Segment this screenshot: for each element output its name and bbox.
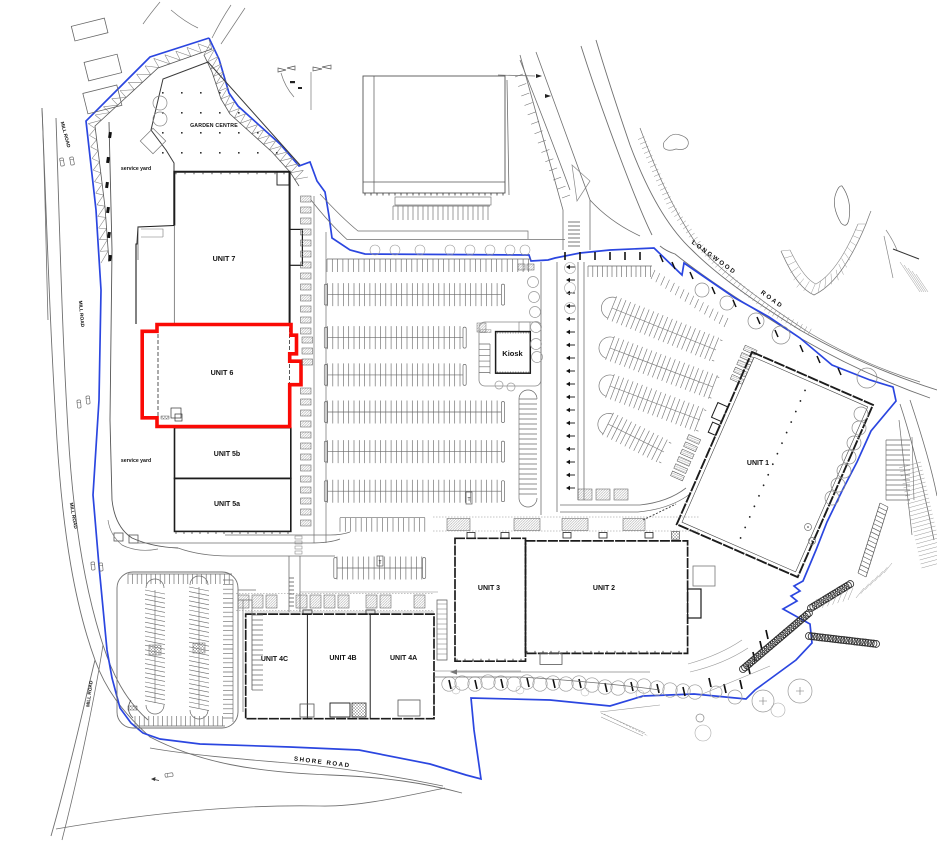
svg-text:UNIT 4B: UNIT 4B bbox=[329, 655, 356, 662]
svg-text:GARDEN CENTRE: GARDEN CENTRE bbox=[190, 123, 238, 129]
svg-text:UNIT 7: UNIT 7 bbox=[213, 254, 236, 263]
svg-text:UNIT 1: UNIT 1 bbox=[747, 460, 769, 467]
svg-text:T: T bbox=[378, 560, 381, 566]
svg-text:UNIT 6: UNIT 6 bbox=[211, 368, 234, 377]
svg-text:UNIT 4A: UNIT 4A bbox=[390, 655, 417, 662]
svg-text:service yard: service yard bbox=[121, 166, 151, 172]
svg-text:T: T bbox=[467, 497, 470, 503]
svg-text:UNIT 4C: UNIT 4C bbox=[261, 656, 288, 663]
svg-text:UNIT 3: UNIT 3 bbox=[478, 585, 500, 592]
svg-text:UNIT 2: UNIT 2 bbox=[593, 585, 615, 592]
svg-text:UNIT 5a: UNIT 5a bbox=[214, 501, 240, 508]
svg-text:service yard: service yard bbox=[121, 458, 151, 464]
svg-text:UNIT 5b: UNIT 5b bbox=[214, 451, 240, 458]
svg-text:Kiosk: Kiosk bbox=[502, 349, 523, 358]
